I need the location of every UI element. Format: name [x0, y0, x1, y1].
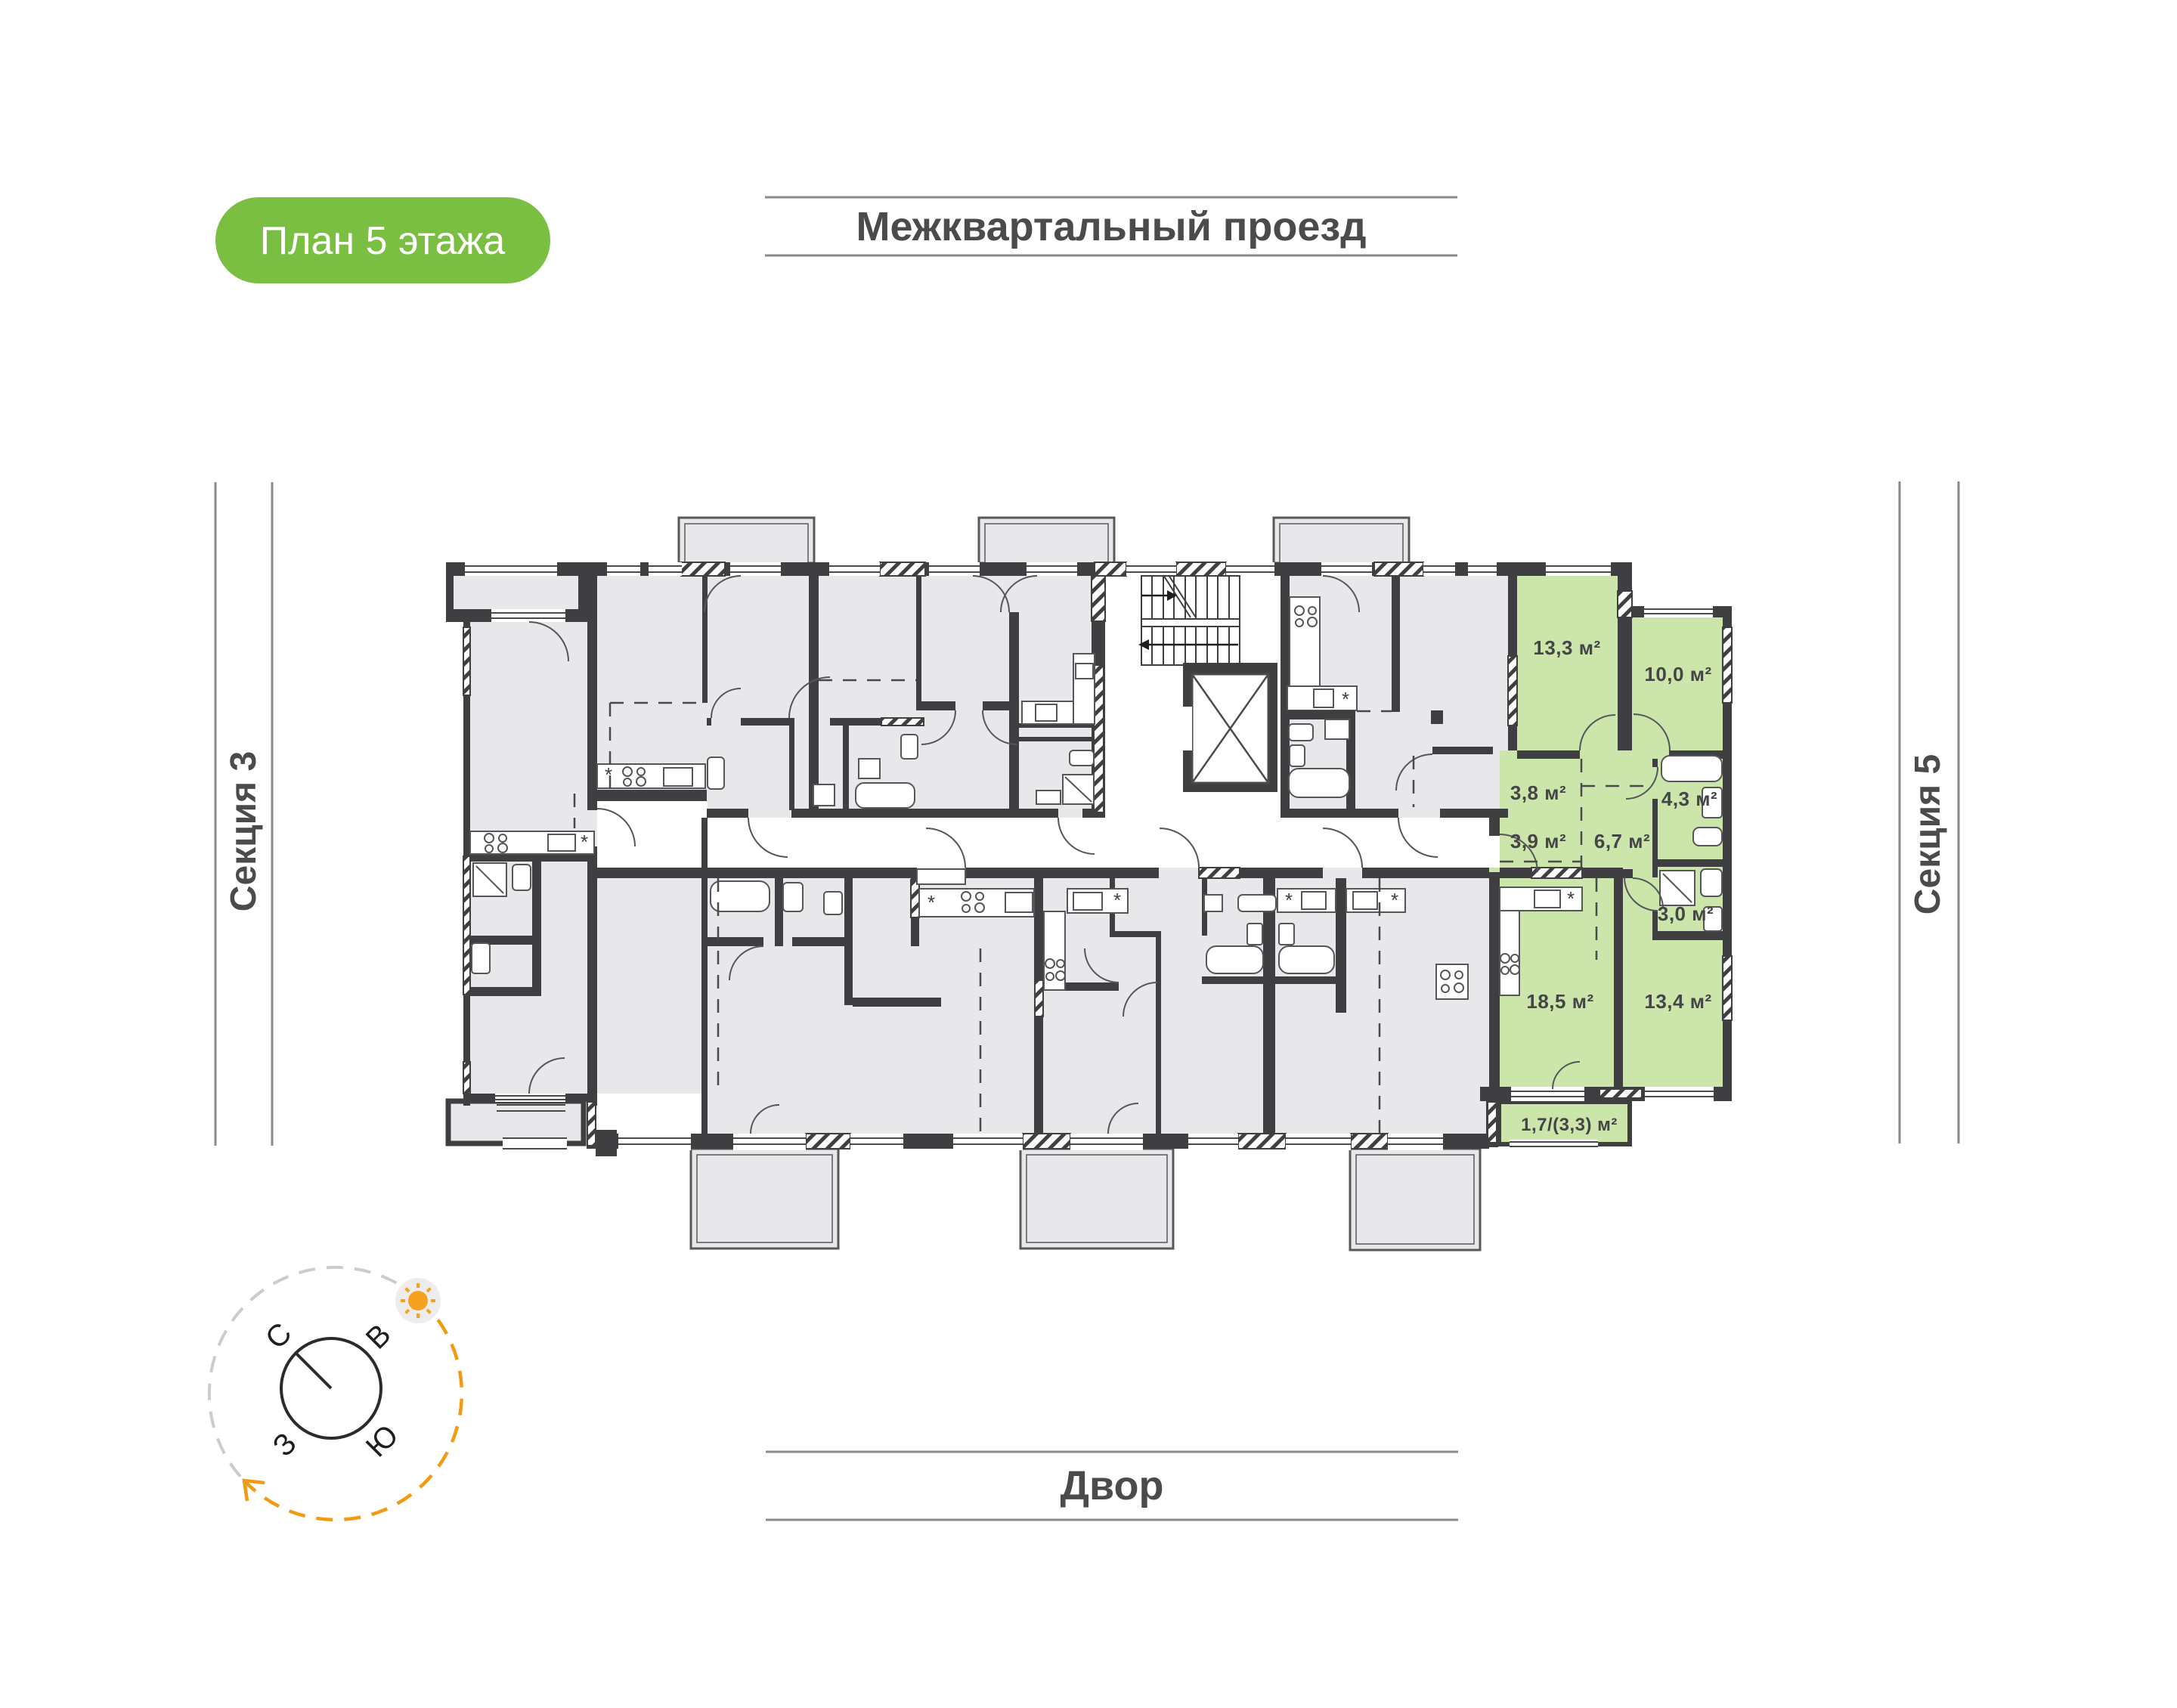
svg-text:3,9 м²: 3,9 м²	[1510, 830, 1566, 852]
svg-text:*: *	[1342, 688, 1349, 710]
svg-text:*: *	[1113, 889, 1121, 911]
svg-text:4,3 м²: 4,3 м²	[1661, 787, 1717, 810]
svg-text:*: *	[1391, 889, 1398, 911]
svg-text:Секция 3: Секция 3	[224, 751, 264, 911]
svg-text:3,0 м²: 3,0 м²	[1658, 902, 1714, 925]
svg-text:13,3 м²: 13,3 м²	[1533, 636, 1600, 659]
svg-text:13,4 м²: 13,4 м²	[1644, 990, 1711, 1013]
svg-text:*: *	[1567, 887, 1575, 910]
svg-text:Межквартальный проезд: Межквартальный проезд	[856, 204, 1366, 249]
svg-text:*: *	[605, 763, 612, 786]
svg-text:*: *	[581, 831, 588, 853]
svg-text:Двор: Двор	[1061, 1463, 1164, 1508]
svg-text:18,5 м²: 18,5 м²	[1526, 990, 1593, 1013]
svg-text:3,8 м²: 3,8 м²	[1510, 781, 1566, 804]
svg-text:*: *	[1285, 889, 1293, 911]
svg-text:*: *	[927, 891, 935, 914]
svg-text:1,7/(3,3) м²: 1,7/(3,3) м²	[1521, 1115, 1618, 1135]
svg-text:6,7 м²: 6,7 м²	[1594, 830, 1650, 852]
svg-text:Секция 5: Секция 5	[1908, 754, 1948, 914]
svg-text:*: *	[1011, 704, 1018, 724]
svg-text:План 5 этажа: План 5 этажа	[260, 219, 505, 263]
svg-text:10,0 м²: 10,0 м²	[1644, 663, 1711, 685]
